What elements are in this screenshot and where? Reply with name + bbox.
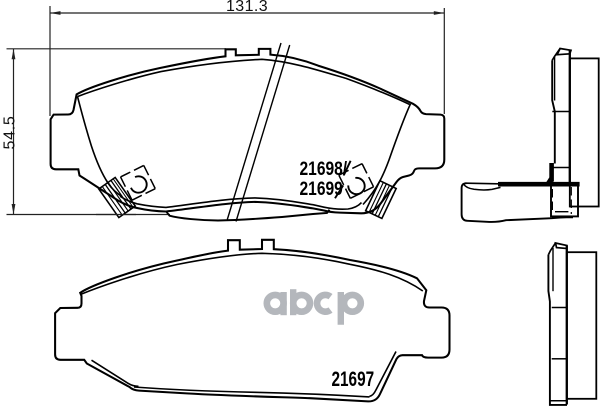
svg-text:131.3: 131.3 xyxy=(226,0,268,15)
svg-text:21697: 21697 xyxy=(332,366,375,390)
svg-text:21698/: 21698/ xyxy=(300,158,348,180)
svg-text:21699: 21699 xyxy=(300,178,344,200)
svg-text:54.5: 54.5 xyxy=(1,116,18,150)
